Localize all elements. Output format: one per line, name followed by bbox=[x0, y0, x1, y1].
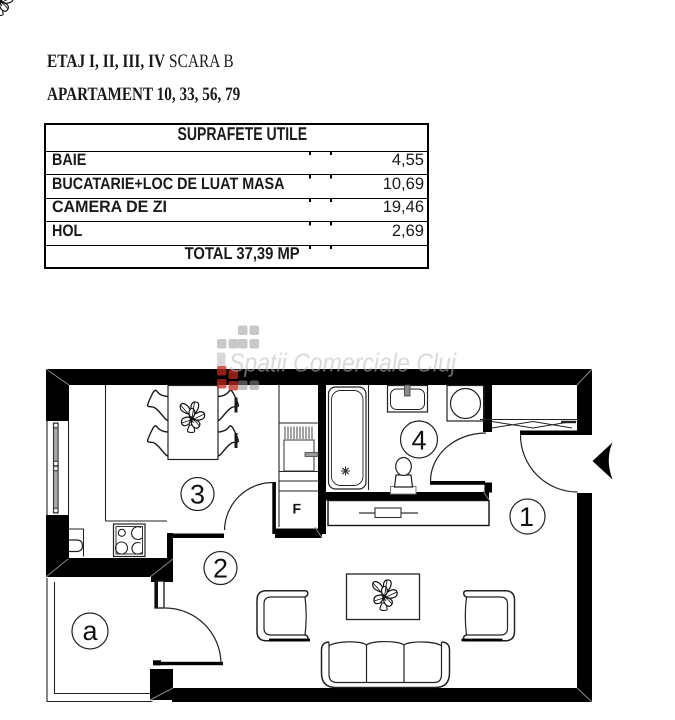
svg-text:3: 3 bbox=[190, 480, 205, 510]
svg-text:2: 2 bbox=[213, 554, 228, 584]
svg-text:F: F bbox=[293, 501, 302, 517]
svg-text:1: 1 bbox=[519, 502, 534, 532]
svg-text:Spatii Comerciale Cluj: Spatii Comerciale Cluj bbox=[229, 348, 457, 378]
svg-text:4: 4 bbox=[411, 426, 426, 456]
svg-text:a: a bbox=[82, 616, 98, 646]
